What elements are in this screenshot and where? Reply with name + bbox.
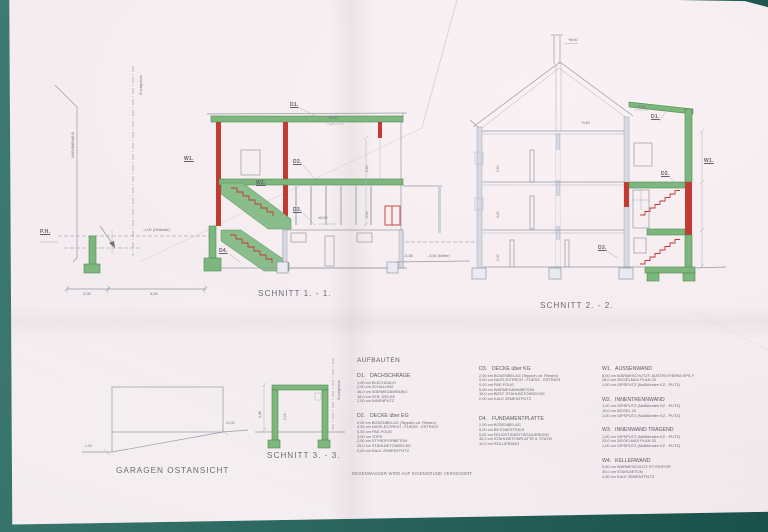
spec-block-header: W2.INNENTRENNWAND [602,397,724,403]
garage-title: GARAGEN OSTANSICHT [116,466,229,475]
spec-block-header: D3.DECKE über KG [479,366,601,372]
aufbauten-column-2: D3.DECKE über KG 2,00 cm BODENBELAG (Tep… [479,366,601,456]
spec-block-header: W1.AUSSENWAND [602,366,724,372]
sec1-w2-label: W2. [256,180,266,186]
sec2-vdim-2: 2,60 [496,211,500,218]
spec-line: 1,00 cm GIPSPUTZ (Naßbürsten KZ - PUTZ) [602,383,724,388]
spec-name: DACHSCHRÄGE [370,373,410,379]
sec1-dim-400: 4,00 [150,291,158,296]
sec1-vdim-2: 2,60 [365,211,369,218]
sec3-dim-inner: 2,26 [283,413,287,420]
spec-code: D2. [357,413,370,419]
grundgrenze-label-2: Grundgrenze [337,380,341,400]
schnitt3-title: SCHNITT 3. - 3. [267,451,341,460]
sec1-w1-label: W1. [184,156,194,162]
spec-name: FUNDAMENTPLATTE [492,416,544,422]
spec-block-w4: W4.KELLERWAND 5,00 cm WÄRMESCHUTZ STYROP… [602,458,724,480]
spec-line: 10,0 cm ROLLIERUNG [479,442,601,447]
spec-lines: 1,00 cm BLECHDACH2,40 cm SCHALUNG16,0 cm… [357,381,479,405]
sec2-eave-left-elev-label: +5,80 [581,121,590,125]
aufbauten-column-3: W1.AUSSENWAND 8,00 cm WÄRMESCHUTZF. AUST… [602,366,724,488]
aufbauten-heading: AUFBAUTEN [357,357,400,364]
schnitt2-title: SCHNITT 2. - 2. [540,301,614,310]
ph-label: P.H. [40,229,50,235]
spec-lines: 1,00 cm GIPSPUTZ (Naßbürsten KZ - PUTZ)2… [602,435,724,449]
sec2-ridge-elev-label: +8,60 [568,38,578,42]
spec-line: 1,00 cm GIPSPUTZ (Naßbürsten KZ - PUTZ) [602,414,724,419]
sec1-elev-zero-label: ±0,00 [318,216,327,220]
spec-code: D3. [479,366,492,372]
spec-lines: 2,00 cm BODENBELAG (Teppich od. Fliesen)… [357,421,479,454]
sec2-vdim-3: 2,30 [496,254,500,261]
sec1-d1-label: D1. [290,102,299,108]
spec-line: 2,00 cm KALK ZEMENTPUTZ [479,397,601,402]
sec2-w1-label: W1. [704,158,714,164]
spec-name: INNENWAND TRAGEND [615,427,674,433]
sec2-eave-right-elev-label: +5,80 [637,105,646,109]
nachbarhaus-label: NACHBARHAUS [71,132,75,158]
minus038-level-label: -0,38 [404,254,413,258]
ground-lines-between-sections [395,242,475,262]
spec-line: 1,00 cm GIPSPUTZ (Naßbürsten KZ - PUTZ) [602,444,724,449]
spec-block-w2: W2.INNENTRENNWAND 1,00 cm GIPSPUTZ (Naßb… [602,397,724,419]
rainwater-note: REGENWASSER WIRD AUF EIGENGRUND VERSICKE… [352,471,472,476]
spec-code: W1. [602,366,615,372]
drawing-sheet: .ln{stroke:#9399a6;stroke-width:0.7;fill… [0,0,768,532]
gelaende-level-label: -1,00 (Gelände) [143,228,170,232]
spec-name: DECKE über KG [492,366,531,372]
sec2-d2-label: D2. [661,171,670,177]
spec-name: DECKE über EG [370,413,409,419]
spec-line: 2,00 cm KALK ZEMENTPUTZ [357,449,479,454]
garage-minus100-label: -1,00 [84,444,92,448]
spec-code: W4. [602,458,615,464]
site-lines [40,66,213,262]
spec-lines: 1,00 cm GIPSPUTZ (Naßbürsten KZ - PUTZ)1… [602,404,724,418]
spec-lines: 5,00 cm WÄRMESCHUTZ STYROPOR30,0 cm STAH… [602,465,724,479]
spec-lines: 2,00 cm BODENBELAG (Teppich od. Fliesen)… [479,374,601,402]
spec-code: D4. [479,416,492,422]
keller-level-label: -3,30 (Keller) [428,254,450,258]
sec1-vdim-1: 2,60 [365,165,369,172]
sec2-d1-label: D1. [651,114,660,120]
spec-block-d1: D1.DACHSCHRÄGE 1,00 cm BLECHDACH2,40 cm … [357,373,479,404]
sec1-elev-top-label: +5,80 [328,116,338,120]
sec3-dim-outer: 2,46 [258,411,262,418]
spec-block-header: D2.DECKE über EG [357,413,479,419]
spec-block-header: W4.KELLERWAND [602,458,724,464]
spec-code: D1. [357,373,370,379]
garage-zero-label: ±0,00 [226,421,234,425]
spec-block-w1: W1.AUSSENWAND 8,00 cm WÄRMESCHUTZF. AUST… [602,366,724,388]
spec-lines: 2,00 cm BODENBELAG5,00 cm BETONESTRICH0,… [479,423,601,447]
spec-block-header: W3.INNENWAND TRAGEND [602,427,724,433]
spec-name: AUSSENWAND [615,366,652,372]
spec-name: INNENTRENNWAND [615,397,665,403]
garage-elevation-drawing [82,387,248,455]
spec-name: KELLERWAND [615,458,650,464]
sec1-d2-label: D2. [293,159,302,165]
spec-lines: 8,00 cm WÄRMESCHUTZF. AUSTROTHERM EPS-F2… [602,374,724,388]
spec-block-d3: D3.DECKE über KG 2,00 cm BODENBELAG (Tep… [479,366,601,402]
spec-line: 1,00 cm KALK ZEMENTPUTZ [602,475,724,480]
spec-block-d2: D2.DECKE über EG 2,00 cm BODENBELAG (Tep… [357,413,479,453]
photo-of-architectural-plan: { "colors":{"background_teal":"#2f6b63",… [0,0,768,532]
spec-block-d4: D4.FUNDAMENTPLATTE 2,00 cm BODENBELAG5,0… [479,416,601,447]
spec-block-header: D4.FUNDAMENTPLATTE [479,416,601,422]
sec1-d4-label: D4. [219,248,228,254]
schnitt1-title: SCHNITT 1. - 1. [258,289,332,298]
spec-code: W3. [602,427,615,433]
sec2-vdim-1: 2,60 [496,165,500,172]
grundgrenze-label-1: Grundgrenze [139,75,143,95]
spec-code: W2. [602,397,615,403]
spec-block-w3: W3.INNENWAND TRAGEND 1,00 cm GIPSPUTZ (N… [602,427,724,449]
spec-block-header: D1.DACHSCHRÄGE [357,373,479,379]
sec1-dim-200: 2,00 [83,291,91,296]
spec-line: 2,00 cm INNENPUTZ [357,399,479,404]
aufbauten-column-1: D1.DACHSCHRÄGE 1,00 cm BLECHDACH2,40 cm … [357,373,479,462]
section3-drawing [255,358,345,448]
sec1-d3-label: D3. [293,207,302,213]
sec2-d3-label: D3. [598,245,607,251]
paper-crease-lines [140,0,768,350]
section1-drawing [65,108,442,293]
